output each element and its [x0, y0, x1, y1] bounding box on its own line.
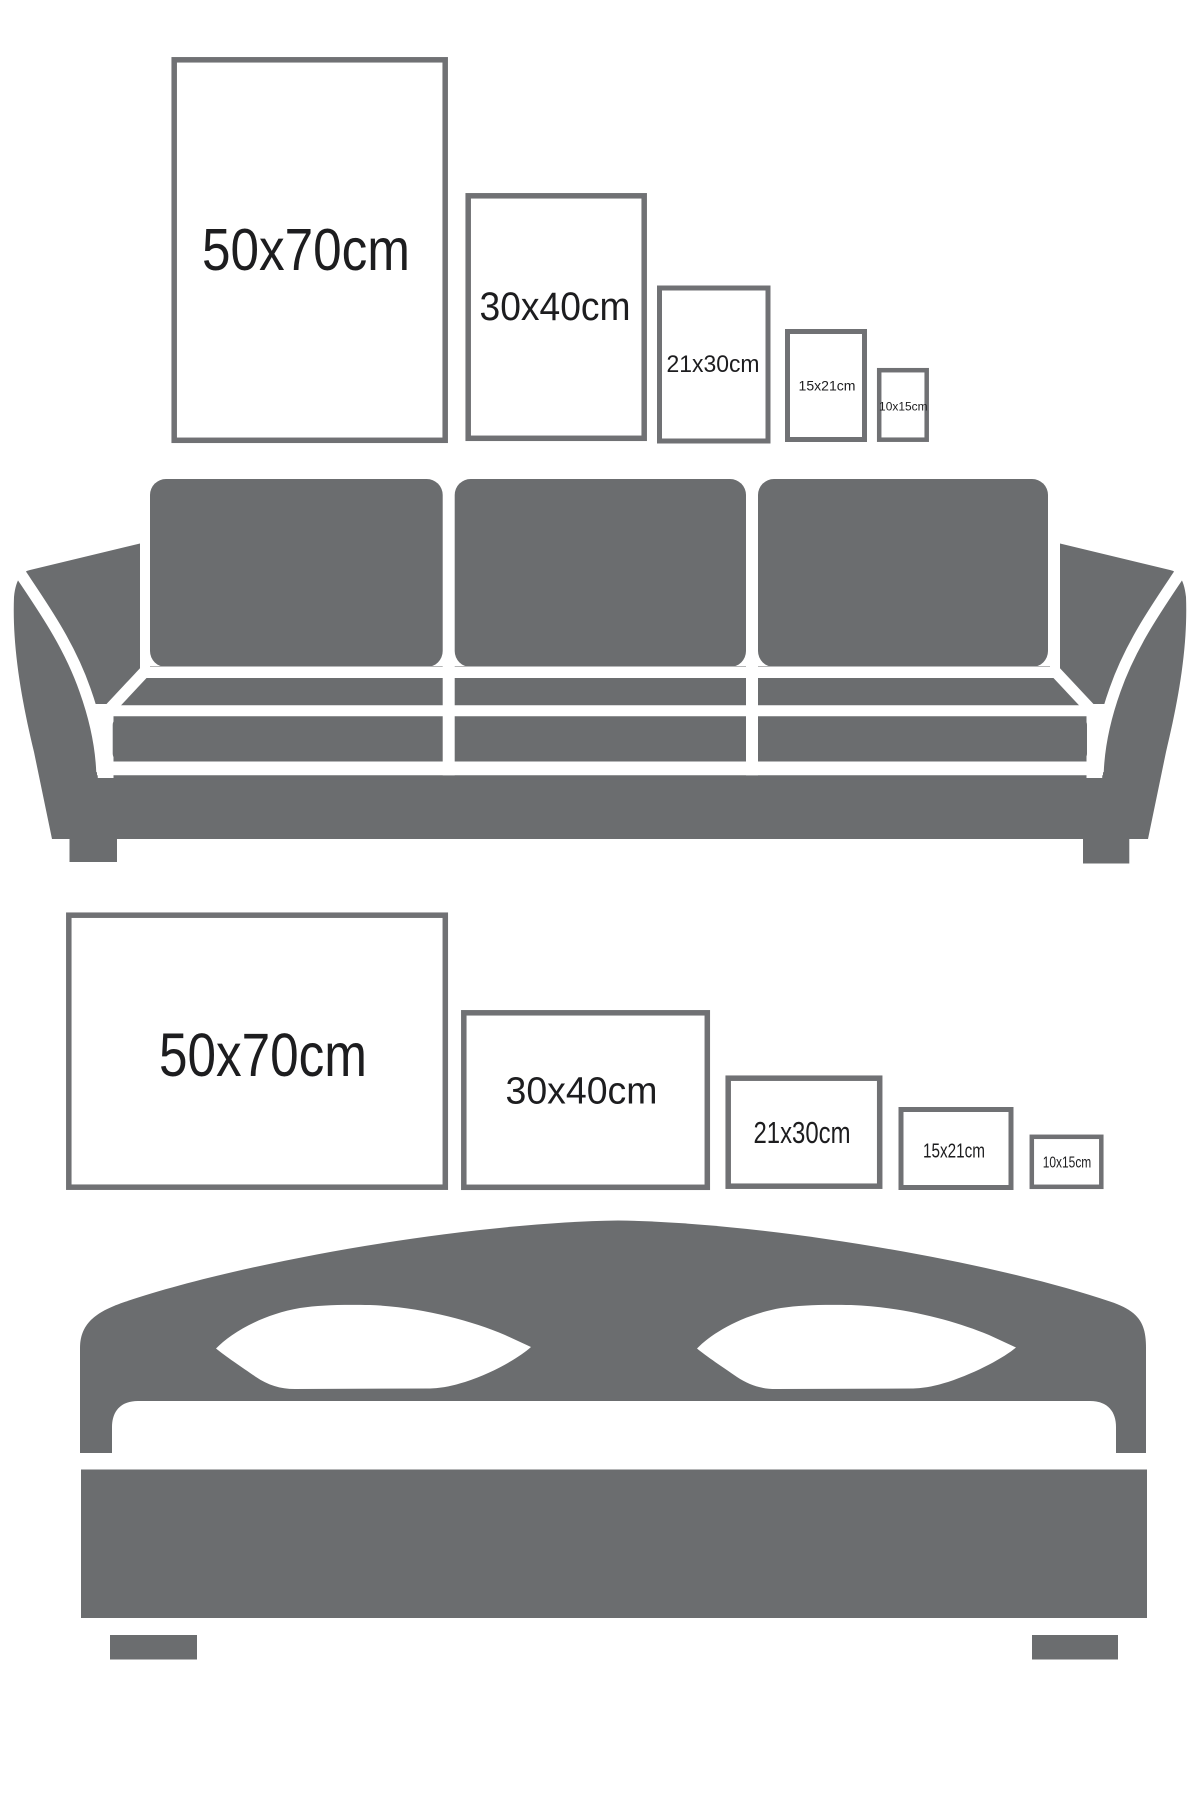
svg-text:15x21cm: 15x21cm [799, 378, 856, 394]
svg-text:30x40cm: 30x40cm [506, 1071, 658, 1113]
svg-text:50x70cm: 50x70cm [202, 217, 410, 283]
svg-text:30x40cm: 30x40cm [480, 285, 631, 329]
svg-text:21x30cm: 21x30cm [667, 351, 760, 378]
svg-text:15x21cm: 15x21cm [923, 1139, 985, 1162]
svg-text:50x70cm: 50x70cm [159, 1021, 367, 1090]
svg-text:10x15cm: 10x15cm [1043, 1155, 1092, 1172]
svg-text:10x15cm: 10x15cm [879, 400, 928, 414]
svg-text:21x30cm: 21x30cm [754, 1117, 851, 1150]
